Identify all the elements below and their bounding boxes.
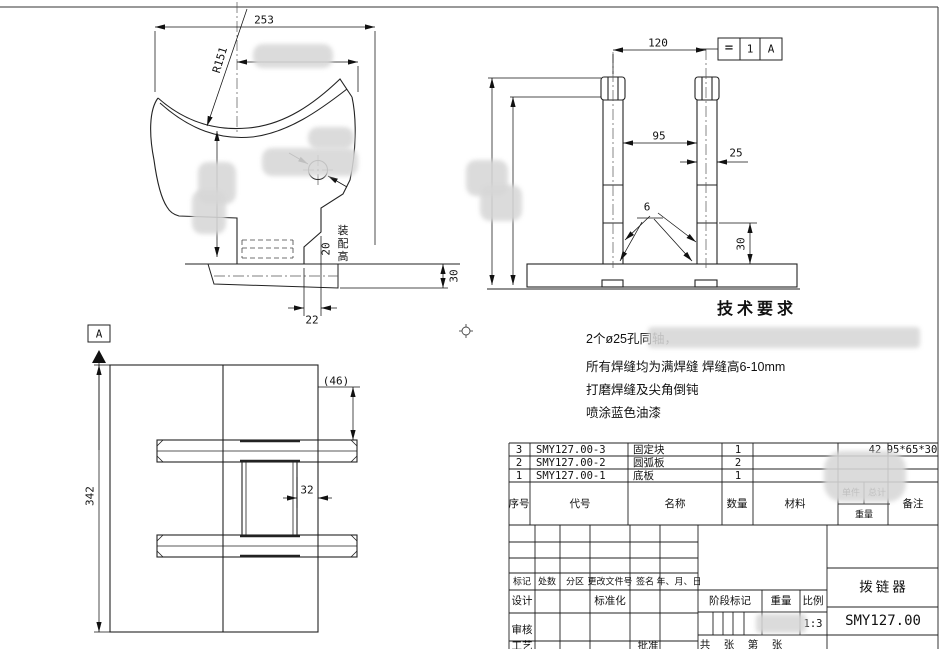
assembly-height-label: 装配高 [334,225,350,264]
header-weight: 重量 [855,511,873,520]
masked-dimension [262,148,358,176]
drawing-linework [0,0,945,649]
part-row-name: 固定块 [633,445,665,456]
dim-width-253: 253 [254,15,274,26]
dim-ref-46: (46) [323,376,350,387]
tb-stage-mark: 阶段标记 [709,596,751,607]
tech-requirements-title: 技术要求 [717,302,797,318]
tolerance-value: 1 [747,44,754,55]
part-row-seq: 1 [516,471,522,482]
tb-sign: 签名 [636,578,654,587]
part-row-code: SMY127.00-3 [536,445,606,456]
tb-no-label: 第 [748,640,759,649]
tb-zone: 分区 [566,578,584,587]
part-row-code: SMY127.00-2 [536,458,606,469]
masked-dimension [308,127,354,149]
tb-sheet2-label: 张 [772,640,783,649]
dim-height-30: 30 [736,237,747,250]
header-name: 名称 [665,499,686,510]
tb-standard: 标准化 [594,596,626,607]
tech-requirement-3: 打磨焊缝及尖角倒钝 [586,384,699,397]
tb-scale: 比例 [803,596,824,607]
tb-doc-no: 更改文件号 [587,578,632,587]
side-view-centerlines [613,49,706,268]
part-row-name: 底板 [633,471,654,482]
part-row-qty: 2 [735,458,741,469]
tb-design: 设计 [512,596,533,607]
top-view-dimension-lines [94,363,360,632]
tolerance-symbol: = [725,41,733,55]
tb-check: 审核 [512,625,533,636]
masked-dimension [253,44,333,68]
dim-length-342: 342 [85,486,96,506]
masked-text [648,327,920,348]
tech-requirement-4: 喷涂蓝色油漆 [586,407,661,420]
header-qty: 数量 [727,499,748,510]
part-name: 拨链器 [859,580,909,594]
part-row-name: 圆弧板 [633,458,665,469]
engineering-drawing-sheet: 253 R151 22 30 20 装配高 120 95 25 6 30 = 1… [0,0,945,649]
view-a-label: A [96,329,103,340]
dim-step-22: 22 [305,315,318,326]
header-remark: 备注 [903,499,924,510]
masked-dimension [192,190,226,234]
tolerance-datum: A [768,44,775,55]
part-row-qty: 1 [735,445,741,456]
tech-requirement-2: 所有焊缝均为满焊缝 焊缝高6-10mm [586,361,785,374]
part-row-seq: 3 [516,445,522,456]
drawing-number: SMY127.00 [845,614,921,628]
tb-sheet-label: 张 [724,640,735,649]
dim-assembly-20: 20 [321,242,332,255]
masked-dimension [480,185,522,221]
header-material: 材料 [785,499,806,510]
tb-process: 工艺 [512,641,533,649]
dim-inner-95: 95 [652,131,665,142]
tb-approve: 批准 [638,641,659,649]
top-view-linework [110,365,357,632]
tb-mark: 标记 [513,578,531,587]
tb-date: 年、月、日 [656,578,701,587]
dim-weld-6: 6 [644,202,651,213]
header-seq: 序号 [509,499,530,510]
part-row-qty: 1 [735,471,741,482]
dim-post-25: 25 [729,148,742,159]
dim-gap-32: 32 [300,485,313,496]
tb-count: 处数 [538,578,556,587]
tb-weight: 重量 [771,596,792,607]
tb-scale-value: 1:3 [804,619,823,630]
tb-total-label: 共 [700,640,711,649]
dim-flange-30: 30 [449,269,460,282]
side-view-linework [487,77,800,289]
part-row-code: SMY127.00-1 [536,471,606,482]
header-code: 代号 [570,499,591,510]
masked-weight-value [756,614,806,633]
masked-table-values [824,451,906,502]
dim-span-120: 120 [648,38,668,49]
part-row-seq: 2 [516,458,522,469]
cad-cursor[interactable] [459,324,473,338]
front-view-hidden-lines [242,240,293,258]
